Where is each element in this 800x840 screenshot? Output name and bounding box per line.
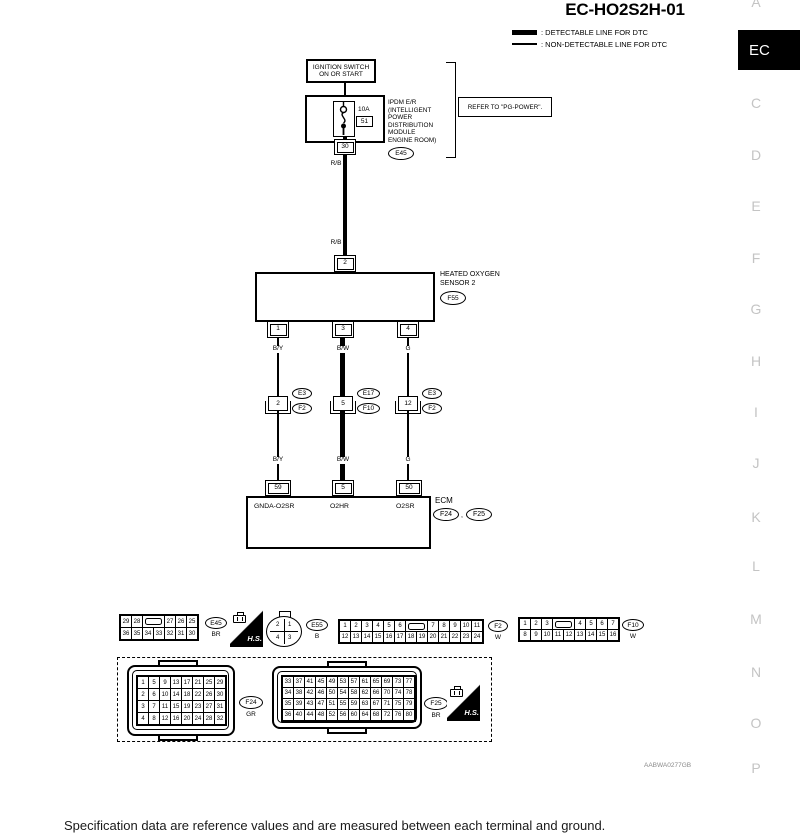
connector-pin: 3 [288,635,291,641]
ecm-connector-separator: , [461,512,463,520]
connector-id-label: F25 [424,697,448,710]
section-letter-m: M [746,611,766,627]
ipdm-name-line: DISTRIBUTION [388,122,436,130]
wiring-diagram-page: EC-HO2S2H-01 : DETECTABLE LINE FOR DTC :… [0,0,800,840]
hs-label: H.S. [464,708,479,717]
connector-id-label: E55 [306,619,328,631]
connector-glyph-icon [233,615,246,623]
connector-id-label: F10 [622,619,644,631]
connector-view-f2: 123456789101112131415161718192021222324 [338,619,484,644]
ecm-connector-label: F25 [466,508,492,521]
harness-side-mark: H.S. [230,609,263,647]
thick-line-swatch [512,30,537,35]
hs-label: H.S. [247,634,262,643]
wire-label-g: G [404,457,411,464]
wire-label-bw: B/W [336,346,350,353]
fuse-rating: 10A [358,106,370,113]
legend-row: : NON-DETECTABLE LINE FOR DTC [512,38,667,50]
wire-label-rb: R/B [330,161,343,168]
ecm-terminal-59: 59 [265,480,291,496]
ecm-terminal-5: 5 [332,480,354,496]
terminal-1: 1 [267,321,289,338]
connector-id-label: F24 [239,696,263,709]
heated-oxygen-sensor-box [255,272,435,322]
section-letter-p: P [746,760,766,776]
ipdm-name-line: IPDM E/R [388,99,436,107]
connector-glyph-icon [450,689,463,697]
connector-color: BR [205,631,227,638]
connector-view-f25: 3337414549535761656973773438424650545862… [281,675,416,722]
connector-view-e55: 2 1 4 3 [266,616,302,647]
connector-id-label: F2 [488,620,508,632]
ignition-switch-box: IGNITION SWITCH ON OR START [306,59,376,83]
section-letter-e: E [746,198,766,214]
ecm-connector-label: F24 [433,508,459,521]
ignition-switch-label: IGNITION SWITCH ON OR START [308,64,374,79]
ecm-signal-label: O2SR [396,503,415,511]
connector-pin: 32 [214,712,226,725]
terminal-3: 3 [332,321,354,338]
fuse-number-box: 51 [356,116,373,127]
connector-pin: 30 [186,627,198,640]
connector-id-label: E45 [205,617,227,629]
harness-side-mark: H.S. [447,683,480,721]
joint-connector: 12 [398,396,418,411]
section-letter-i: I [746,404,766,420]
section-letter-o: O [746,715,766,731]
wire-label-by: B/Y [272,457,284,464]
legend-label: : NON-DETECTABLE LINE FOR DTC [541,40,667,49]
legend-row: : DETECTABLE LINE FOR DTC [512,26,667,38]
ipdm-connector-label: E45 [388,147,414,160]
connector-view-e45: 292827262536353433323130 [119,614,199,641]
joint-upper-label: E3 [422,388,442,399]
joint-connector: 5 [333,396,353,411]
terminal-2: 2 [334,255,356,272]
ecm-signal-label: O2HR [330,503,349,511]
connector-pin: 2 [276,622,279,628]
section-tab-ec: EC [738,30,800,70]
legend-label: : DETECTABLE LINE FOR DTC [541,28,648,37]
connector-pin: 1 [288,622,291,628]
ipdm-name-line: POWER [388,114,436,122]
ecm-signal-label: GNDA-O2SR [254,503,294,511]
section-letter-j: J [746,455,766,471]
ecm-terminal-50: 50 [396,480,422,496]
sensor-name: HEATED OXYGEN SENSOR 2 [440,271,500,288]
thin-line-swatch [512,43,537,45]
page-title: EC-HO2S2H-01 [540,0,710,20]
figure-code: AABWA0277GB [644,762,691,769]
connector-color: GR [239,711,263,718]
connector-pin: 80 [403,709,415,721]
ecm-name: ECM [435,496,453,505]
section-letter-f: F [746,250,766,266]
section-letter-c: C [746,95,766,111]
ipdm-name-line: MODULE [388,129,436,137]
connector-color: BR [424,712,448,719]
section-letter-l: L [746,558,766,574]
refer-bracket [446,62,456,158]
joint-upper-label: E3 [292,388,312,399]
fuse-symbol [333,101,355,137]
section-letter-a: A [746,0,766,10]
refer-note: REFER TO "PG-POWER". [458,97,552,117]
terminal-4: 4 [397,321,419,338]
joint-upper-label: E17 [357,388,380,399]
section-letter-k: K [746,509,766,525]
ipdm-name-line: (INTELLIGENT [388,107,436,115]
wire-label-bw: B/W [336,457,350,464]
section-letter-h: H [746,353,766,369]
connector-pin: 16 [607,629,619,641]
ecm-box: GNDA-O2SR O2HR O2SR [246,496,431,549]
connector-view-f24: 1591317212529261014182226303711151923273… [136,675,227,726]
fuse-glyph [334,102,353,135]
terminal-30: 30 [334,139,356,155]
ipdm-name: IPDM E/R(INTELLIGENTPOWERDISTRIBUTIONMOD… [388,99,436,145]
footer-note: Specification data are reference values … [64,818,605,833]
joint-lower-label: F10 [357,403,380,414]
joint-lower-label: F2 [422,403,442,414]
section-letter-n: N [746,664,766,680]
section-letter-g: G [746,301,766,317]
wire-label-g: G [404,346,411,353]
connector-view-f10: 12345678910111213141516 [518,617,620,642]
connector-color: W [622,633,644,640]
joint-lower-label: F2 [292,403,312,414]
ipdm-name-line: ENGINE ROOM) [388,137,436,145]
connector-pin: 24 [471,631,483,643]
legend: : DETECTABLE LINE FOR DTC : NON-DETECTAB… [512,26,667,50]
joint-connector: 2 [268,396,288,411]
wire-label-by: B/Y [272,346,284,353]
connector-pin: 4 [276,635,279,641]
sensor-connector-label: F55 [440,291,466,305]
wire-label-rb: R/B [330,240,343,247]
connector-color: W [488,634,508,641]
section-letter-d: D [746,147,766,163]
connector-color: B [306,633,328,640]
connector-divider [284,619,285,644]
